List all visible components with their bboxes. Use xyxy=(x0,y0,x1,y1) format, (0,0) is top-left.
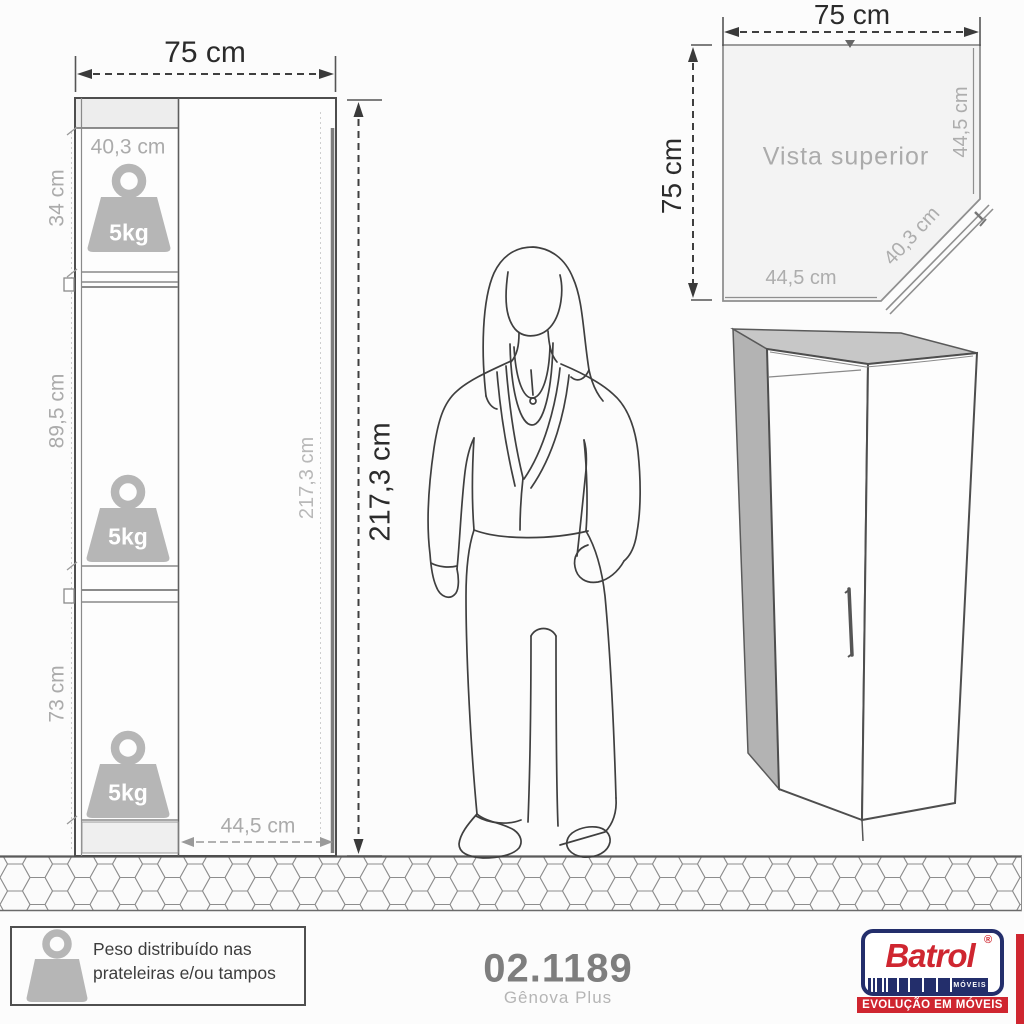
logo-barcode-block xyxy=(924,978,936,992)
top-view-bottom-dimension: 44,5 cm xyxy=(765,268,836,288)
logo-barcode-block xyxy=(910,978,922,992)
logo-barcode-block xyxy=(888,978,897,992)
weight-label-2: 5kg xyxy=(108,526,148,549)
weight-note-line-2: prateleiras e/ou tampos xyxy=(93,963,276,984)
right-arm xyxy=(561,364,640,561)
right-leg xyxy=(586,531,616,798)
top-view-right-dimension: 44,5 cm xyxy=(951,86,971,157)
logo-barcode-block xyxy=(868,978,871,992)
left-leg xyxy=(466,530,477,814)
logo-barcode: MÓVEIS xyxy=(868,978,988,992)
section-2-dimension: 89,5 cm xyxy=(47,374,68,449)
hair-outline xyxy=(483,247,603,401)
page-edge-red-strip xyxy=(1016,934,1024,1024)
logo-barcode-block xyxy=(877,978,882,992)
jacket-hem xyxy=(474,530,588,538)
door-panel xyxy=(767,349,868,820)
logo-barcode-block xyxy=(938,978,950,992)
woman-silhouette xyxy=(428,247,640,858)
top-view-depth-dimension: 75 cm xyxy=(658,138,686,214)
registered-trademark-icon: ® xyxy=(984,934,992,946)
front-height-dimension: 217,3 cm xyxy=(367,422,396,541)
front-inner-width-dimension: 40,3 cm xyxy=(91,137,166,158)
section-3-dimension: 73 cm xyxy=(47,665,68,722)
product-code: 02.1189 xyxy=(483,947,632,992)
floor-hex-pattern xyxy=(0,856,1022,911)
front-width-dimension: 75 cm xyxy=(164,38,246,68)
logo-barcode-block xyxy=(899,978,908,992)
logo-moveis-label: MÓVEIS xyxy=(952,978,988,992)
brand-logo-text: Batrol xyxy=(862,937,998,975)
weight-label-1: 5kg xyxy=(109,222,149,245)
weight-label-3: 5kg xyxy=(108,782,148,805)
top-view-width-dimension: 75 cm xyxy=(814,1,890,29)
section-1-dimension: 34 cm xyxy=(47,169,68,226)
furniture-spec-sheet: 75 cm 40,3 cm 34 cm 89,5 cm 73 cm 217,3 … xyxy=(0,0,1024,1024)
logo-barcode-block xyxy=(873,978,875,992)
right-panel xyxy=(862,353,977,820)
logo-barcode-block xyxy=(884,978,886,992)
top-view-title: Vista superior xyxy=(763,145,929,170)
logo-tagline-banner: EVOLUÇÃO EM MÓVEIS xyxy=(857,997,1008,1013)
left-shoe xyxy=(459,814,521,858)
face-outline xyxy=(506,272,562,336)
product-name: Gênova Plus xyxy=(504,988,612,1008)
front-inner-height-dimension: 217,3 cm xyxy=(297,437,317,519)
front-bottom-width-dimension: 44,5 cm xyxy=(221,816,296,837)
wardrobe-3d-drawing xyxy=(733,329,977,841)
weight-note-line-1: Peso distribuído nas xyxy=(93,939,252,960)
